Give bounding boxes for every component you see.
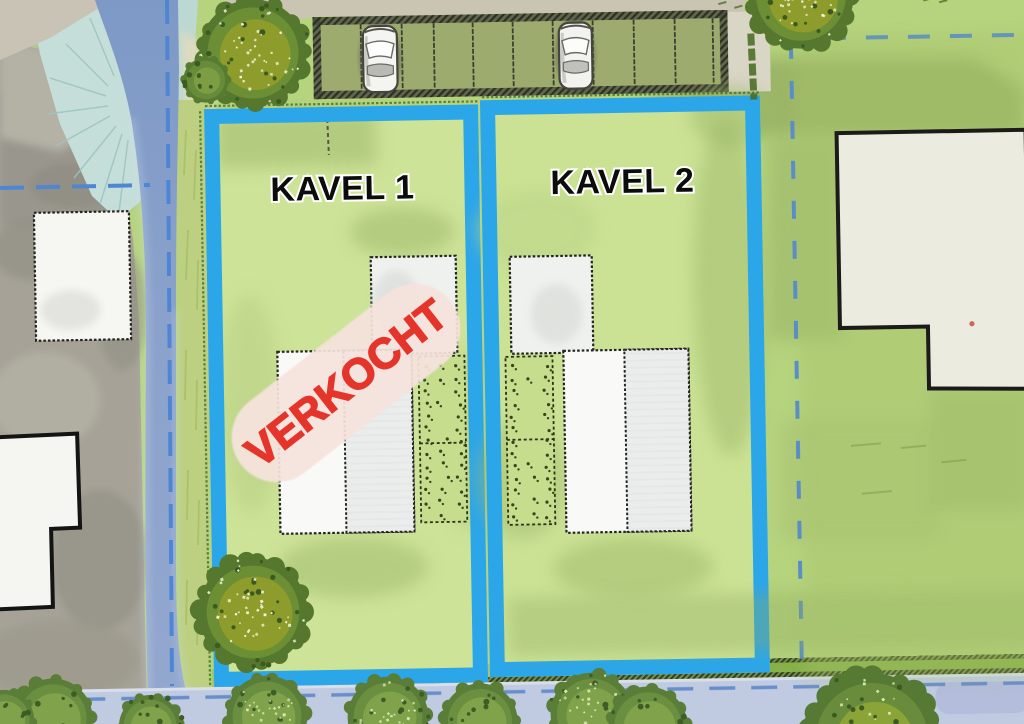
svg-text:KAVEL 1: KAVEL 1 (270, 168, 415, 209)
svg-text:KAVEL 2: KAVEL 2 (550, 162, 695, 203)
